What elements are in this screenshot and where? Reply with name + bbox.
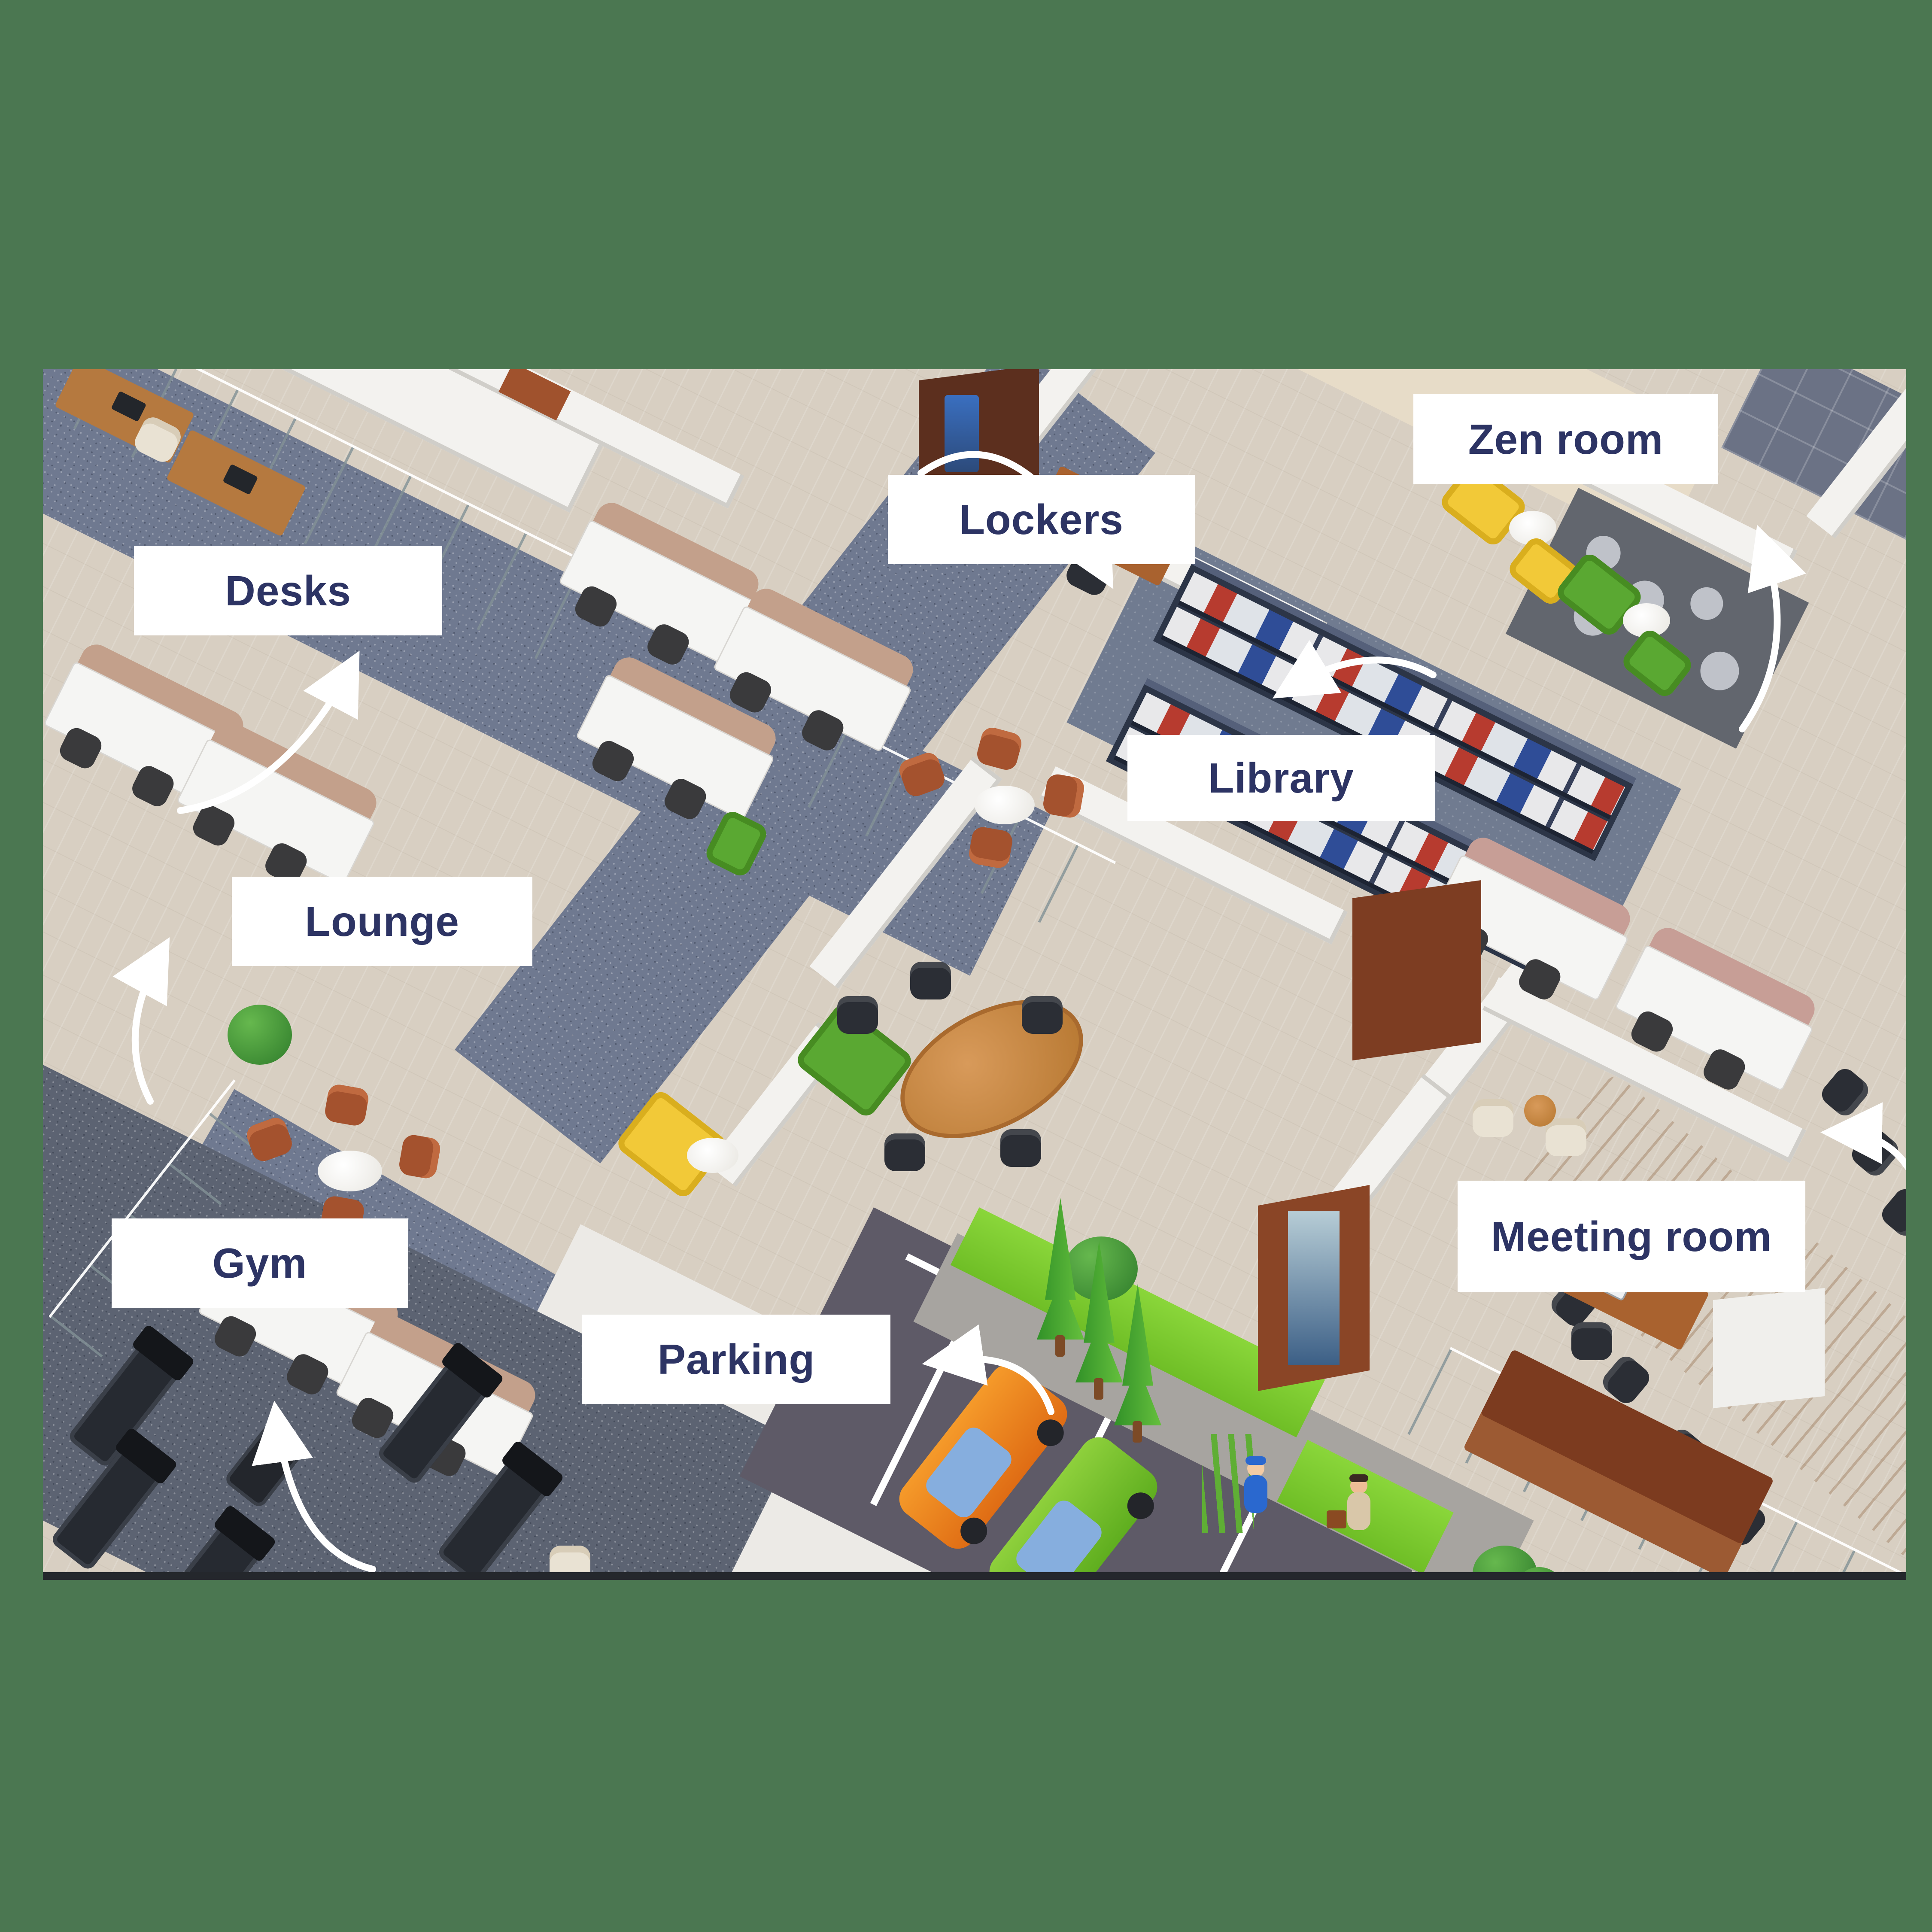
label-gym: Gym [112, 1218, 408, 1308]
task-chair [1022, 996, 1063, 1034]
white-counter [1713, 1288, 1825, 1408]
task-chair [1000, 1129, 1041, 1167]
briefcase [1327, 1510, 1346, 1528]
task-chair [910, 962, 951, 999]
label-lockers: Lockers [888, 475, 1195, 564]
label-library: Library [1127, 735, 1435, 821]
lounge-armchair [323, 1083, 370, 1127]
monitor [222, 464, 258, 495]
person-body [1347, 1492, 1370, 1530]
person-head [1247, 1460, 1264, 1477]
person-body [1244, 1475, 1267, 1513]
plant [228, 1005, 292, 1065]
tree-trunk [1133, 1421, 1142, 1443]
office-floorplan-illustration: Desks Lockers Zen room Library Lounge Me… [43, 369, 1906, 1580]
zen-pebble [1685, 582, 1728, 626]
locker-clothes [945, 395, 979, 472]
wing-armchair [1546, 1118, 1586, 1156]
tree-trunk [1094, 1378, 1103, 1400]
side-table [1524, 1095, 1556, 1127]
label-meeting-room: Meeting room [1458, 1181, 1805, 1292]
security-guard [1241, 1460, 1271, 1528]
conference-chair [1877, 1185, 1906, 1240]
cabinet-glass [1288, 1211, 1340, 1365]
gym-armchair [550, 1546, 590, 1580]
page: { "illustration": { "description": "Isom… [0, 0, 1932, 1932]
task-chair [837, 996, 878, 1034]
lounge-armchair [967, 825, 1014, 869]
task-chair [884, 1133, 925, 1171]
lounge-table [318, 1151, 382, 1191]
arrow-lounge-icon [135, 955, 160, 1101]
conference-chair [1817, 1064, 1872, 1120]
booth-table [687, 1138, 738, 1173]
label-desks: Desks [134, 546, 442, 635]
reception-chair [1571, 1322, 1612, 1360]
label-lounge: Lounge [232, 877, 532, 966]
label-zen-room: Zen room [1413, 394, 1718, 484]
person-head [1350, 1477, 1367, 1494]
display-cabinet [1258, 1185, 1370, 1391]
wing-armchair [1473, 1099, 1513, 1137]
lounge-table [975, 786, 1035, 824]
tree-trunk [1055, 1335, 1065, 1357]
lounge-armchair [1042, 773, 1086, 820]
conference-chair [1847, 1124, 1902, 1180]
monitor [111, 391, 146, 422]
label-parking: Parking [582, 1315, 890, 1404]
wood-cabinet [1352, 880, 1481, 1060]
lounge-armchair [398, 1133, 442, 1180]
visitor-woman [1344, 1477, 1374, 1546]
zen-pebble [1694, 645, 1746, 697]
